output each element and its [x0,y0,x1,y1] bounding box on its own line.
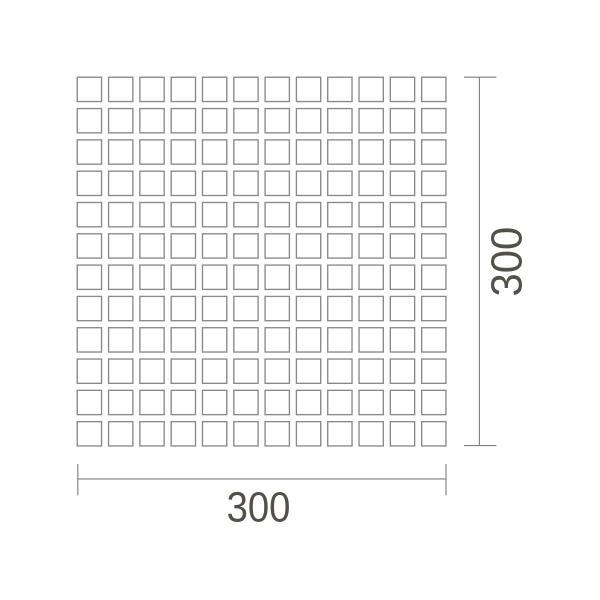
svg-text:300: 300 [227,482,291,531]
svg-text:300: 300 [483,227,532,297]
